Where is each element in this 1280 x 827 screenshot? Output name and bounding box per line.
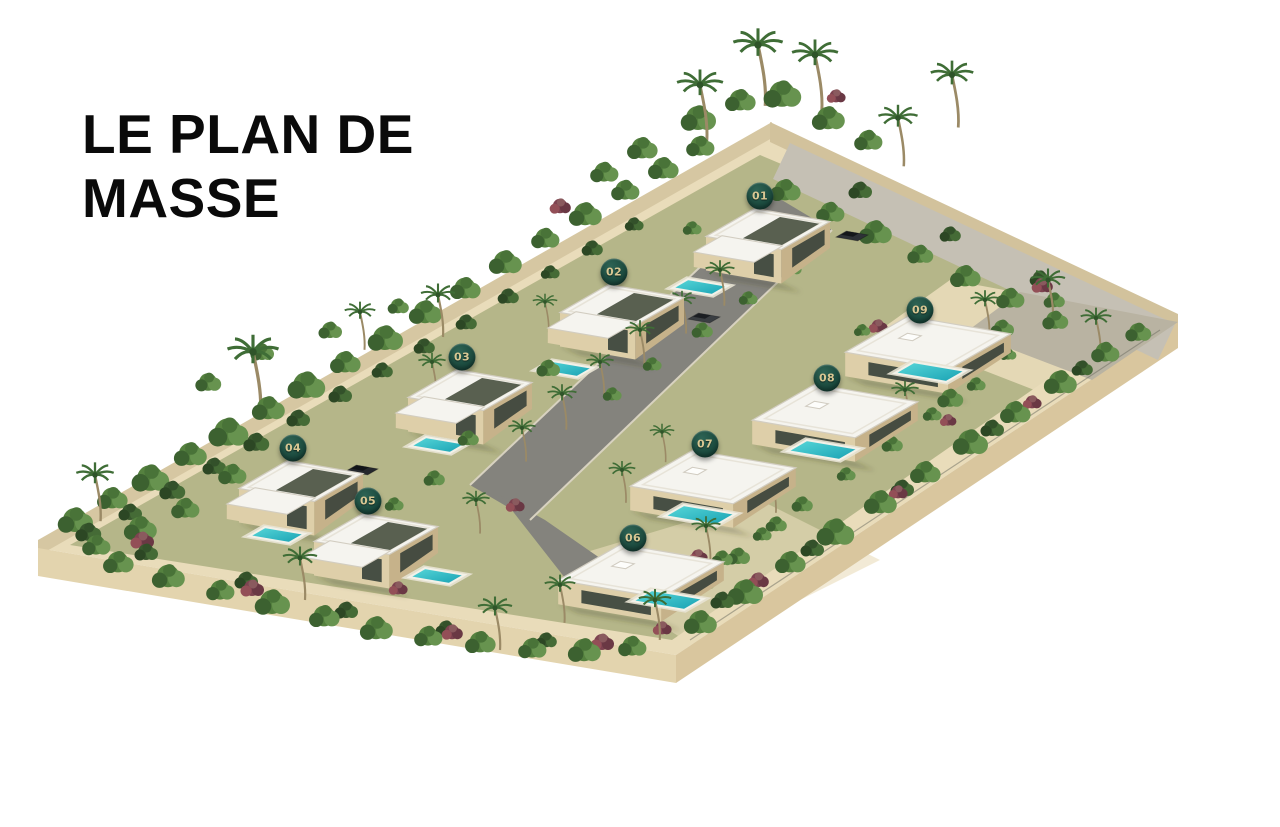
villa-badge-08[interactable]: 08 <box>814 365 841 392</box>
villa-badge-number: 03 <box>454 351 470 364</box>
villa-badge-number: 08 <box>819 372 835 385</box>
villa-badge-number: 06 <box>625 532 641 545</box>
villa-badge-01[interactable]: 01 <box>747 183 774 210</box>
villa-badge-02[interactable]: 02 <box>601 259 628 286</box>
villa-badge-number: 01 <box>752 190 768 203</box>
villa-badge-05[interactable]: 05 <box>355 488 382 515</box>
villa-badge-number: 04 <box>285 442 301 455</box>
page: LE PLAN DE MASSE <box>0 0 1280 827</box>
villa-badge-09[interactable]: 09 <box>907 297 934 324</box>
villa-badge-06[interactable]: 06 <box>620 525 647 552</box>
villa-badge-03[interactable]: 03 <box>449 344 476 371</box>
villa-badge-number: 09 <box>912 304 928 317</box>
villa-badge-07[interactable]: 07 <box>692 431 719 458</box>
villa-badge-number: 02 <box>606 266 622 279</box>
villa-badge-number: 07 <box>697 438 713 451</box>
villa-badges-layer: 010203040506070809 <box>0 0 1280 827</box>
villa-badge-number: 05 <box>360 495 376 508</box>
villa-badge-04[interactable]: 04 <box>280 435 307 462</box>
